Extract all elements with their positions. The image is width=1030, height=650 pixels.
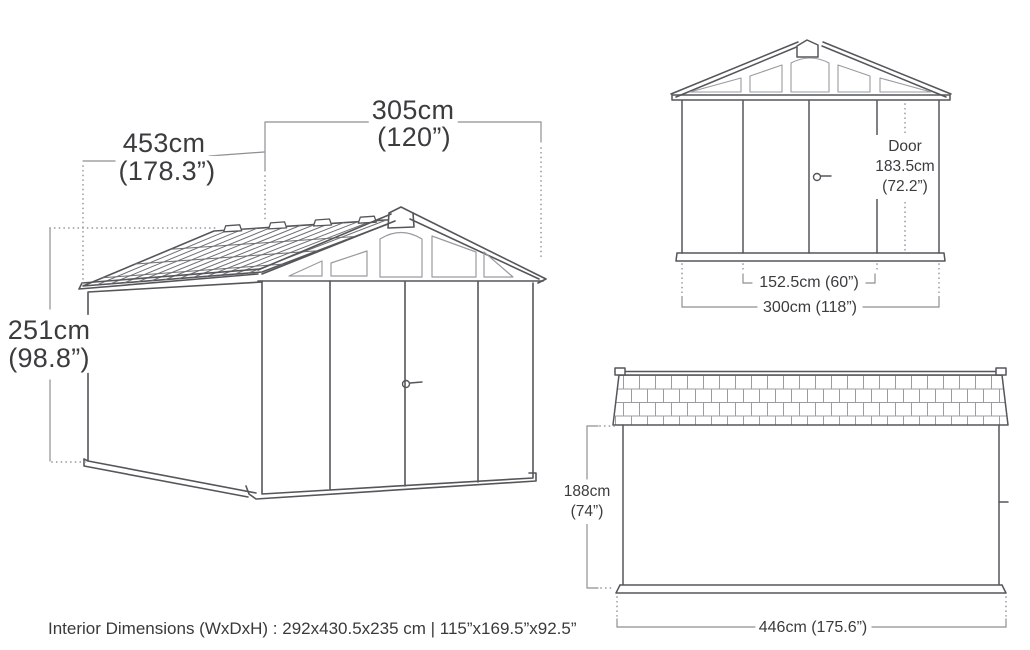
interior-dimensions-note: Interior Dimensions (WxDxH) : 292x430.5x… — [48, 619, 577, 639]
iso-width-cm-label: 305cm — [369, 95, 458, 125]
side-wall-height-cm: 188cm — [564, 482, 611, 502]
front-exterior-width-label: 300cm (118”) — [760, 299, 860, 317]
side-elevation-drawing — [613, 368, 1008, 593]
side-roof-corner-tab-right — [996, 368, 1006, 375]
side-wall-height-in: (74”) — [564, 502, 611, 522]
iso-rake-fascia-right — [410, 213, 546, 283]
iso-height-cm-label: 251cm — [5, 315, 94, 345]
iso-side-wall — [84, 282, 262, 497]
side-wall — [620, 425, 1002, 585]
front-door-height-label: Door 183.5cm (72.2”) — [872, 135, 937, 199]
front-door-width-label: 152.5cm (60”) — [756, 274, 862, 292]
side-roof-shingle-band — [613, 375, 1008, 425]
side-roof-corner-tab-left — [615, 368, 625, 375]
front-door-height-in: (72.2”) — [875, 177, 934, 197]
iso-width-in-label: (120”) — [374, 122, 454, 152]
iso-height-in-label: (98.8”) — [5, 343, 93, 373]
diagram-line-art — [0, 0, 1030, 650]
front-door-height-cm: 183.5cm — [875, 157, 934, 177]
shed-dimensions-diagram: 453cm (178.3”) 305cm (120”) 251cm (98.8”… — [0, 0, 1030, 650]
side-depth-label: 446cm (175.6”) — [756, 619, 871, 637]
isometric-shed-drawing — [79, 207, 546, 499]
front-base-rail — [676, 253, 945, 261]
front-eave-band — [672, 95, 950, 100]
iso-depth-cm-label: 453cm — [120, 128, 209, 158]
side-wall-height-label: 188cm (74”) — [561, 480, 614, 524]
front-gable-windows — [690, 58, 931, 92]
iso-depth-in-label: (178.3”) — [116, 156, 219, 186]
iso-cupola — [388, 207, 414, 228]
side-base-rail — [616, 585, 1006, 593]
front-door-handle — [814, 174, 832, 181]
front-door-word: Door — [875, 137, 934, 157]
iso-front-wall-panels — [262, 281, 533, 494]
front-cupola — [797, 40, 818, 57]
